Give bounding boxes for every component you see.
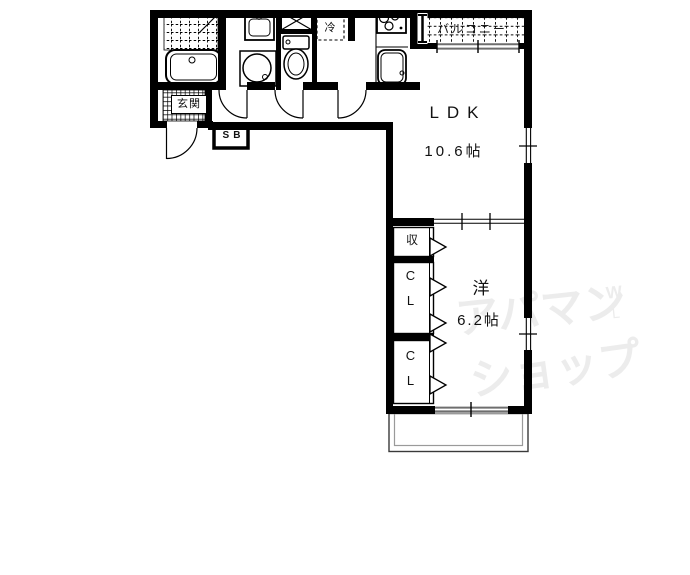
washroom [240, 13, 276, 86]
toilet-room [281, 12, 312, 79]
ldk-door [338, 90, 366, 118]
balcony-bottom [389, 414, 528, 452]
kitchen-sink [378, 50, 406, 85]
windows [433, 40, 537, 417]
washroom-door [219, 90, 247, 118]
refrigerator-label: 冷 [316, 19, 344, 35]
western-room-label: 洋 [464, 274, 498, 299]
ldk-size-label: 10.6帖 [393, 140, 515, 161]
entrance-label: 玄関 [171, 95, 207, 114]
toilet-door [275, 90, 303, 118]
entrance-door [167, 128, 198, 159]
western-room-balcony-window [435, 402, 508, 417]
shoebox-label: SB [216, 130, 247, 141]
toilet [283, 36, 309, 79]
western-room-size-label: 6.2帖 [436, 309, 522, 330]
ldk-partition [433, 213, 524, 230]
kitchen [376, 11, 408, 85]
washing-machine [240, 51, 276, 86]
closet-lower-label: CL [403, 348, 418, 408]
bathroom [164, 16, 221, 84]
balcony-label: バルコニー [424, 20, 520, 37]
ldk-right-window [519, 128, 537, 163]
floorplan: アパマン ショップ W L [0, 0, 690, 575]
storage-label: 収 [395, 231, 429, 248]
bathtub [166, 50, 221, 84]
floorplan-drawing [0, 0, 690, 575]
ldk-label: LDK [398, 103, 510, 123]
closet-upper-label: CL [403, 268, 418, 332]
